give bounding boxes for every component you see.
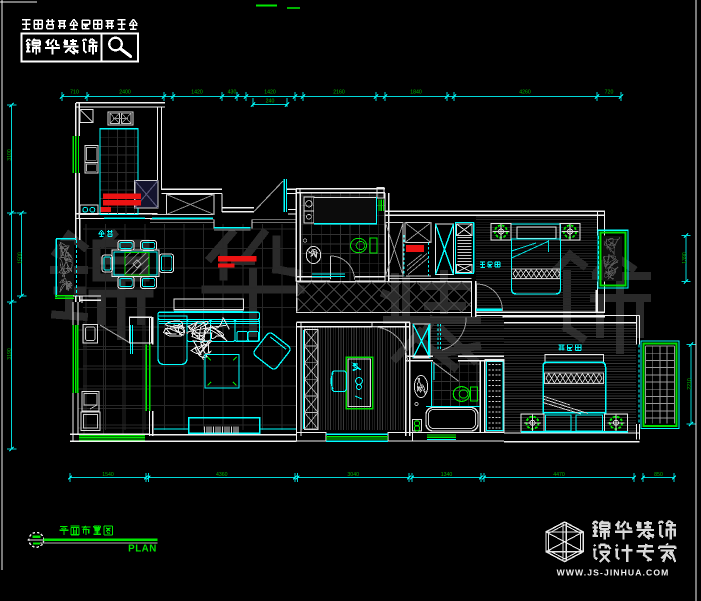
svg-text:4260: 4260	[519, 90, 531, 96]
svg-text:2210: 2210	[687, 378, 693, 390]
svg-text:430: 430	[228, 90, 237, 96]
svg-text:1390: 1390	[682, 252, 688, 264]
svg-text:1500: 1500	[18, 252, 24, 264]
svg-text:1840: 1840	[410, 90, 422, 96]
svg-text:1420: 1420	[264, 90, 276, 96]
svg-text:PLAN: PLAN	[128, 544, 157, 555]
svg-text:3190: 3190	[7, 348, 13, 360]
svg-text:1540: 1540	[102, 472, 114, 478]
svg-text:850: 850	[654, 472, 663, 478]
svg-text:240: 240	[266, 99, 275, 105]
svg-text:WWW.JS-JINHUA.COM: WWW.JS-JINHUA.COM	[557, 568, 670, 578]
svg-text:2160: 2160	[333, 90, 345, 96]
svg-text:1340: 1340	[441, 472, 453, 478]
svg-text:3040: 3040	[347, 472, 359, 478]
svg-text:1420: 1420	[191, 90, 203, 96]
svg-text:3100: 3100	[7, 149, 13, 161]
svg-text:710: 710	[70, 90, 79, 96]
svg-text:720: 720	[605, 90, 614, 96]
svg-text:2400: 2400	[119, 90, 131, 96]
svg-text:4360: 4360	[216, 472, 228, 478]
svg-text:4470: 4470	[553, 472, 565, 478]
